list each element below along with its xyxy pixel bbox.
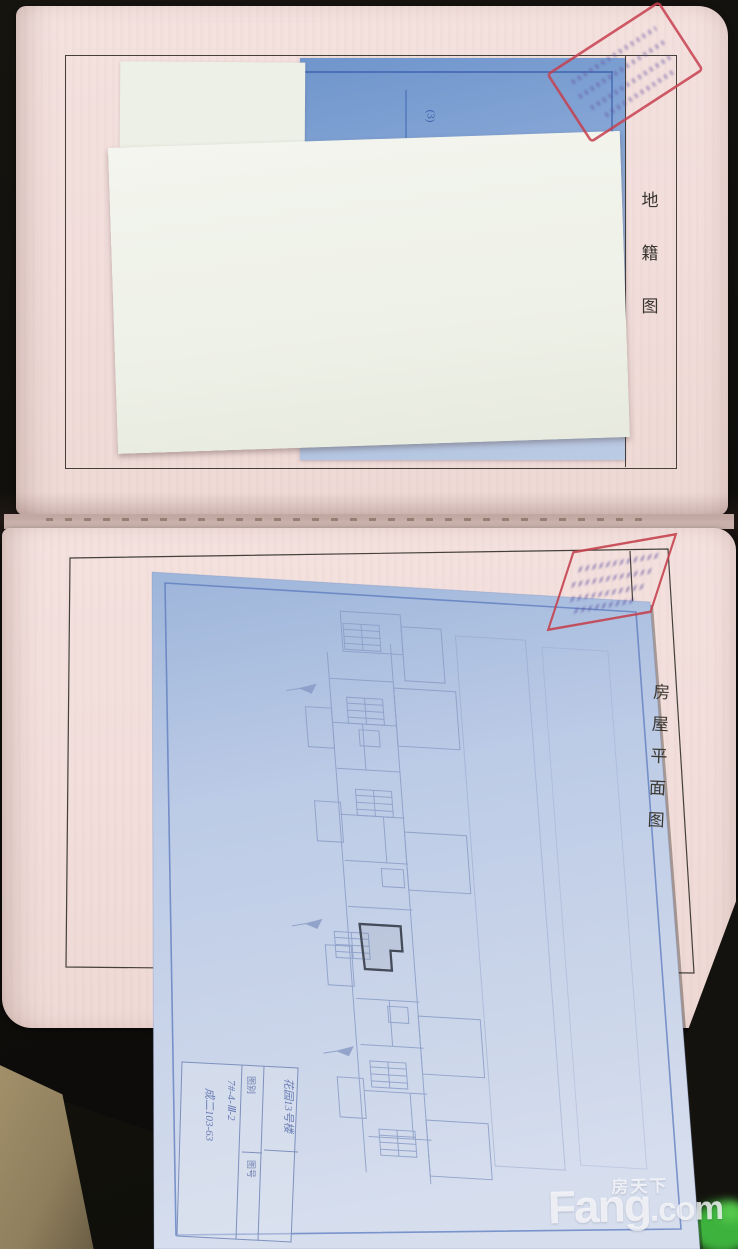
map-corner-note: (3) (424, 110, 436, 123)
binding-stitches (46, 518, 646, 521)
bottom-page (2, 528, 736, 1028)
side-title-char: 籍 (642, 245, 659, 262)
side-title-char: 房 (653, 684, 671, 702)
side-title-char: 图 (642, 298, 659, 315)
title-block-value-1: 花园13号楼 (282, 1078, 295, 1135)
blueprint-title-block: 图别 图号 花园13号楼 7#-4-Ⅲ-2 成二103-63 (177, 1062, 298, 1242)
side-title-char: 面 (649, 780, 667, 798)
title-block-label-2: 图号 (246, 1160, 256, 1178)
fang-watermark: 房天下 Fang.com (547, 1170, 738, 1249)
side-title-char: 平 (650, 748, 668, 766)
side-title-char: 图 (647, 812, 665, 830)
map-border-line (300, 71, 612, 73)
side-title-char: 地 (642, 192, 659, 209)
white-paper-small (120, 61, 306, 148)
watermark-en: Fang.com (547, 1180, 723, 1236)
side-title-char: 屋 (651, 716, 669, 734)
title-block-label-1: 图别 (246, 1076, 256, 1094)
title-block-value-2: 7#-4-Ⅲ-2 (225, 1080, 237, 1121)
title-block-value-3: 成二103-63 (203, 1088, 216, 1142)
top-page-side-title: 地 籍 图 (632, 192, 668, 315)
binding-fold (4, 514, 734, 529)
white-paper-large (108, 131, 630, 454)
map-tick-line (405, 90, 407, 138)
bottom-page-side-title: 房 屋 平 面 图 (638, 683, 680, 829)
photo-of-property-booklet: (3) (0, 0, 738, 1249)
